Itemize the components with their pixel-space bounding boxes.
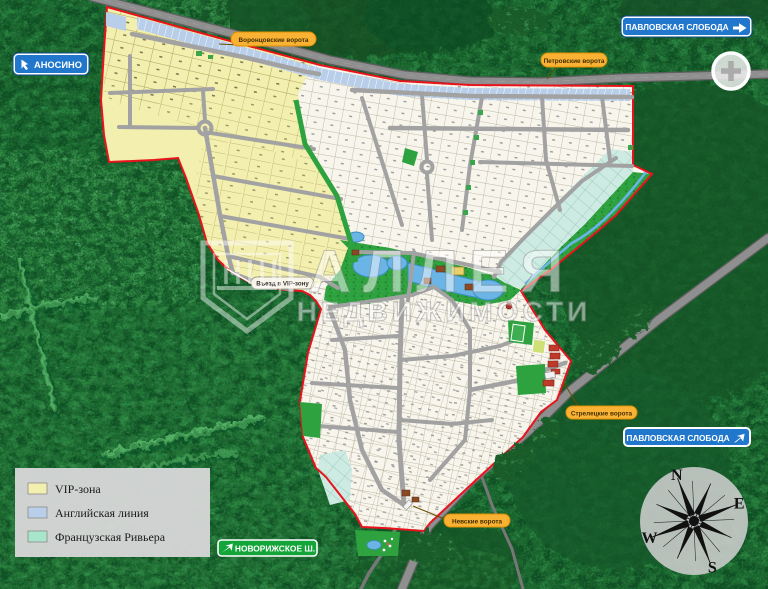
svg-text:W: W (642, 530, 658, 547)
svg-text:S: S (708, 560, 717, 577)
svg-text:ПАВЛОВСКАЯ СЛОБОДА: ПАВЛОВСКАЯ СЛОБОДА (626, 433, 729, 443)
svg-text:Стрелецкие ворота: Стрелецкие ворота (571, 411, 633, 418)
svg-text:Петровские ворота: Петровские ворота (544, 58, 605, 65)
svg-text:VIP-зона: VIP-зона (55, 482, 101, 496)
svg-text:E: E (734, 496, 745, 513)
svg-text:АЛЛЕЯ: АЛЛЕЯ (308, 238, 574, 305)
svg-text:Воронцовские ворота: Воронцовские ворота (239, 37, 309, 44)
svg-text:НЕДВИЖИМОСТИ: НЕДВИЖИМОСТИ (297, 296, 591, 327)
svg-text:АНОСИНО: АНОСИНО (34, 60, 82, 70)
svg-text:Английская линия: Английская линия (55, 506, 149, 520)
svg-text:ПАВЛОВСКАЯ СЛОБОДА: ПАВЛОВСКАЯ СЛОБОДА (625, 22, 728, 32)
svg-text:Невские ворота: Невские ворота (452, 519, 502, 526)
svg-text:Французская Ривьера: Французская Ривьера (55, 530, 166, 544)
svg-text:N: N (671, 467, 683, 484)
svg-text:НОВОРИЖСКОЕ Ш.: НОВОРИЖСКОЕ Ш. (235, 544, 315, 554)
